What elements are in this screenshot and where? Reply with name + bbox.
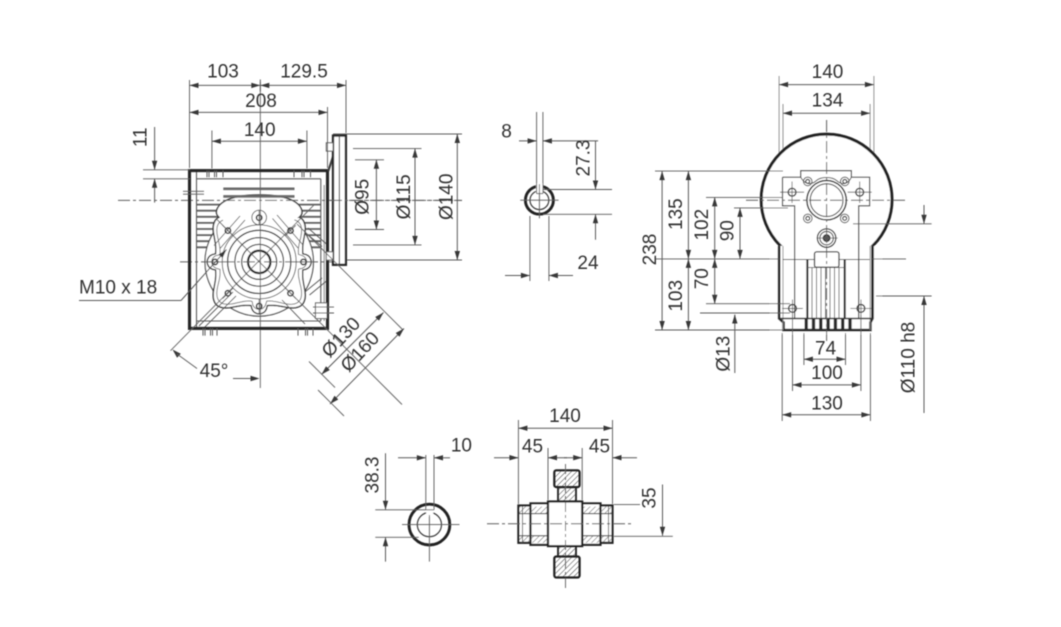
svg-text:140: 140 — [244, 120, 276, 141]
svg-text:130: 130 — [811, 394, 843, 415]
svg-text:45: 45 — [522, 437, 543, 458]
svg-text:M10 x 18: M10 x 18 — [79, 278, 157, 299]
svg-text:Ø13: Ø13 — [714, 336, 735, 372]
svg-text:208: 208 — [245, 91, 277, 112]
svg-text:45: 45 — [589, 437, 610, 458]
svg-text:11: 11 — [131, 127, 152, 147]
svg-text:134: 134 — [812, 91, 844, 112]
svg-text:135: 135 — [666, 198, 687, 230]
svg-text:74: 74 — [815, 339, 837, 360]
svg-text:90: 90 — [718, 220, 739, 241]
svg-text:102: 102 — [692, 209, 713, 241]
svg-text:140: 140 — [812, 62, 844, 83]
svg-text:10: 10 — [451, 436, 472, 457]
svg-text:238: 238 — [640, 234, 661, 266]
svg-text:129.5: 129.5 — [280, 62, 328, 83]
svg-text:Ø95: Ø95 — [353, 179, 374, 215]
svg-text:100: 100 — [811, 363, 843, 384]
svg-text:Ø115: Ø115 — [394, 174, 415, 219]
svg-text:27.3: 27.3 — [574, 140, 595, 177]
svg-text:38.3: 38.3 — [363, 457, 384, 494]
svg-text:Ø110 h8: Ø110 h8 — [899, 322, 920, 393]
svg-text:8: 8 — [501, 122, 512, 143]
svg-text:103: 103 — [666, 280, 687, 312]
svg-text:Ø140: Ø140 — [436, 174, 457, 220]
svg-text:70: 70 — [692, 268, 713, 289]
svg-text:103: 103 — [207, 62, 239, 83]
svg-text:45°: 45° — [200, 361, 229, 382]
svg-text:35: 35 — [640, 487, 661, 508]
svg-text:140: 140 — [549, 406, 581, 427]
svg-text:24: 24 — [577, 253, 599, 274]
